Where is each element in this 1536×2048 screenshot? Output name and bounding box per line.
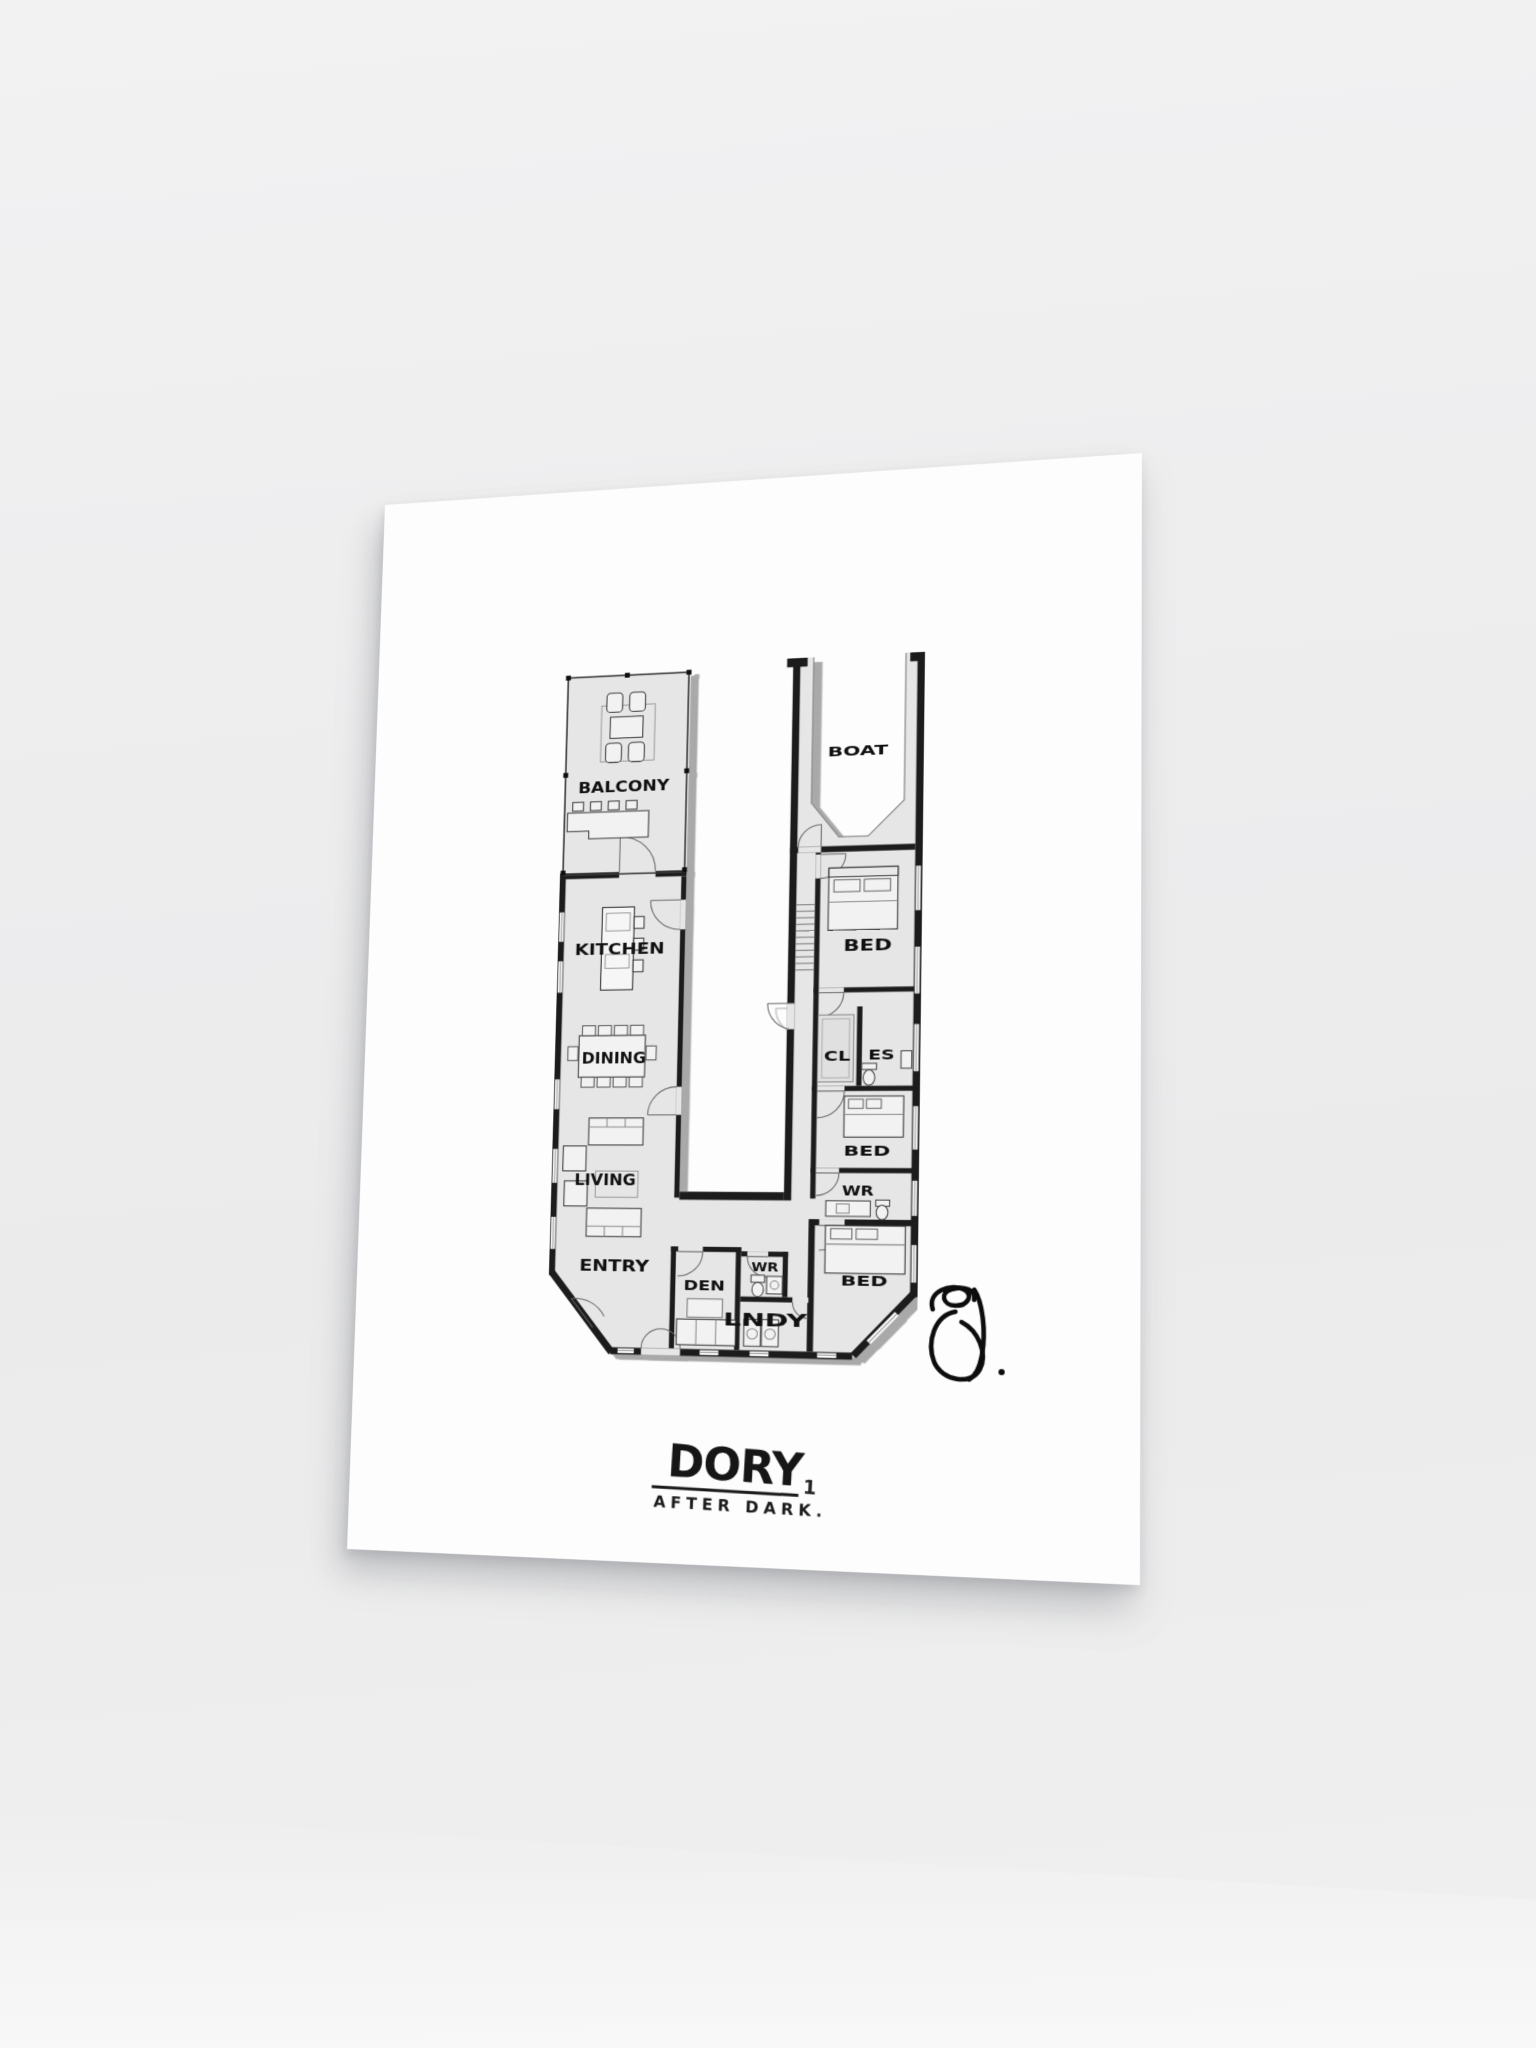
room-label-bed-lower: BED [840, 1272, 887, 1290]
vanity-right-wr [826, 1201, 871, 1217]
brand-mark: 1 [802, 1476, 817, 1499]
signature-scribble-icon [920, 1281, 1010, 1389]
toilet-ensuite [863, 1070, 875, 1085]
room-label-washroom-small: WR [751, 1259, 779, 1274]
room-label-bed-upper: BED [843, 937, 892, 956]
sofa-bottom [586, 1208, 641, 1237]
scene: { "poster": { "brand": "DORY", "brand_ma… [0, 0, 1536, 2048]
sofa-top [588, 1118, 643, 1145]
balcony-table [610, 716, 643, 739]
armchair-1 [563, 1146, 587, 1171]
signature-dot [998, 1369, 1004, 1375]
room-label-living: LIVING [574, 1172, 636, 1190]
room-label-balcony: BALCONY [578, 777, 670, 798]
room-label-boat: BOAT [828, 741, 889, 760]
room-label-closet: CL [824, 1047, 851, 1064]
studio-floor-highlight [0, 1718, 1536, 2048]
room-label-kitchen: KITCHEN [574, 940, 664, 959]
brand-wordmark: DORY [666, 1438, 804, 1494]
room-label-den: DEN [683, 1277, 725, 1295]
den-table [687, 1299, 723, 1318]
sink-small-wr [766, 1276, 782, 1294]
toilet-right-wr [876, 1205, 888, 1220]
brand-logo: DORY1 AFTER DARK. [626, 1435, 859, 1525]
sink-ensuite [901, 1051, 912, 1069]
room-label-dining: DINING [581, 1050, 646, 1068]
room-label-laundry: LNDY [723, 1309, 809, 1331]
room-label-ensuite: ES [868, 1045, 895, 1062]
room-label-washroom-right: WR [842, 1182, 875, 1199]
floor-plan-graphic: BALCONY BOAT KITCHEN DINING LIVING ENTRY… [546, 652, 925, 1404]
toilet-small-wr [752, 1282, 764, 1297]
toilet-tank-small-wr [751, 1275, 765, 1282]
poster-print: BALCONY BOAT KITCHEN DINING LIVING ENTRY… [347, 453, 1142, 1585]
room-label-bed-middle: BED [843, 1142, 890, 1159]
room-label-entry: ENTRY [579, 1257, 650, 1276]
